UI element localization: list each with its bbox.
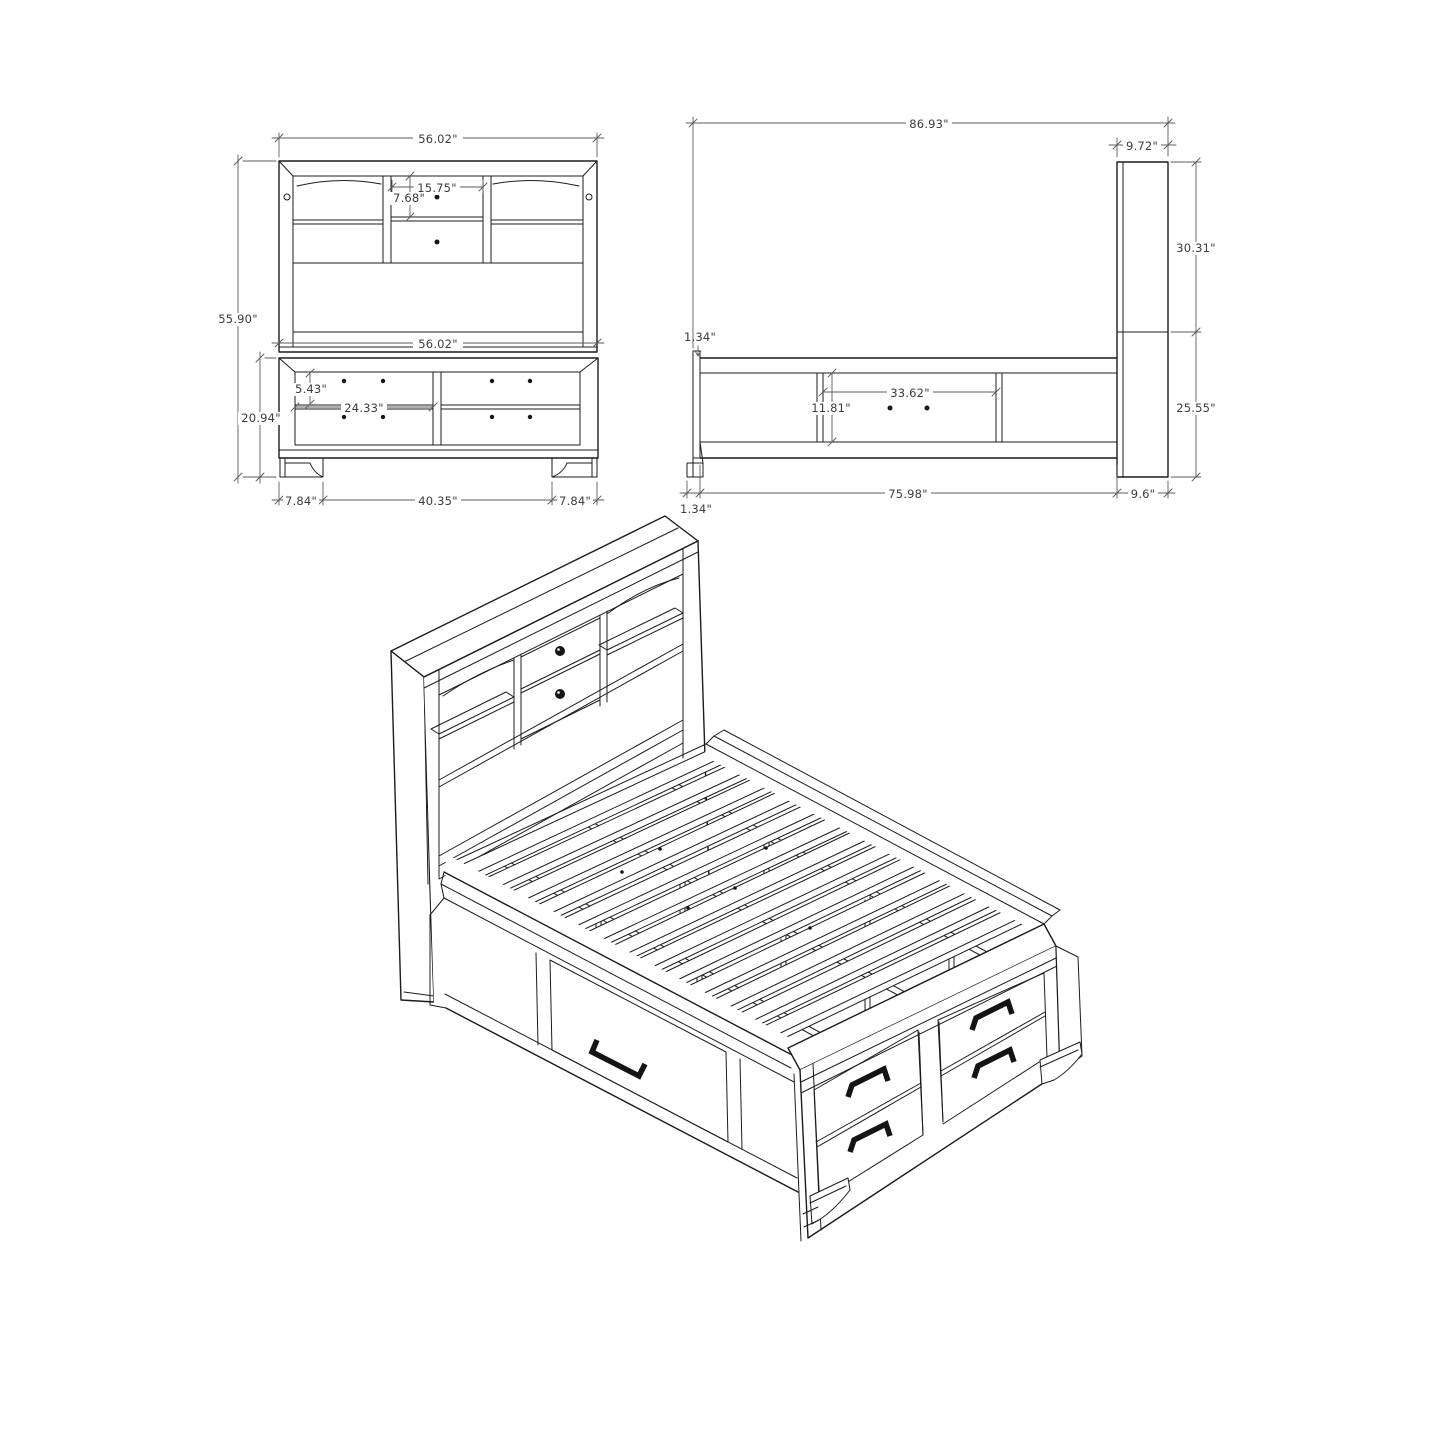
dim-overall-height: 55.90" <box>218 312 257 326</box>
isometric-view <box>391 516 1082 1241</box>
dim-drawer-height: 5.43" <box>295 382 327 396</box>
dim-footboard-width: 56.02" <box>418 337 457 351</box>
dim-side-drawer-height: 11.81" <box>811 401 850 415</box>
iso-headboard-knob <box>555 646 565 656</box>
footboard-right-foot <box>552 458 597 477</box>
side-rail <box>687 351 1117 477</box>
front-footboard <box>279 358 598 477</box>
side-headboard <box>1117 162 1168 477</box>
dim-headboard-base-depth: 9.6" <box>1131 487 1155 501</box>
dim-side-drawer-width: 33.62" <box>890 386 929 400</box>
iso-headboard-knob <box>555 689 565 699</box>
dim-headboard-depth: 9.72" <box>1126 139 1158 153</box>
front-elevation-view: 56.02" 15.75" 7.68" 55.90" 56.02" 5.43" … <box>215 132 604 508</box>
dim-foot-spacing: 40.35" <box>418 494 457 508</box>
headboard-drawer-knob <box>435 195 440 200</box>
dim-footboard-height: 20.94" <box>241 411 280 425</box>
side-elevation-view: 86.93" 9.72" 30.31" 1.34" 33.62" 11.81" … <box>680 117 1219 516</box>
drawing-sheet: 56.02" 15.75" 7.68" 55.90" 56.02" 5.43" … <box>0 0 1445 1445</box>
dim-center-drawer-height: 7.68" <box>393 191 425 205</box>
dim-headboard-width: 56.02" <box>418 132 457 146</box>
headboard-drawer-knob <box>435 240 440 245</box>
technical-drawing: 56.02" 15.75" 7.68" 55.90" 56.02" 5.43" … <box>0 0 1445 1445</box>
dim-footboard-lip: 1.34" <box>684 330 716 344</box>
dim-rail-length: 75.98" <box>888 487 927 501</box>
footboard-left-foot <box>280 458 323 477</box>
dim-headboard-upper-height: 30.31" <box>1176 241 1215 255</box>
dim-platform-height: 25.55" <box>1176 401 1215 415</box>
dim-right-foot-width: 7.84" <box>559 494 591 508</box>
dim-overall-length: 86.93" <box>909 117 948 131</box>
dim-foot-lip: 1.34" <box>680 502 712 516</box>
dim-drawer-width: 24.33" <box>344 401 383 415</box>
dim-left-foot-width: 7.84" <box>285 494 317 508</box>
